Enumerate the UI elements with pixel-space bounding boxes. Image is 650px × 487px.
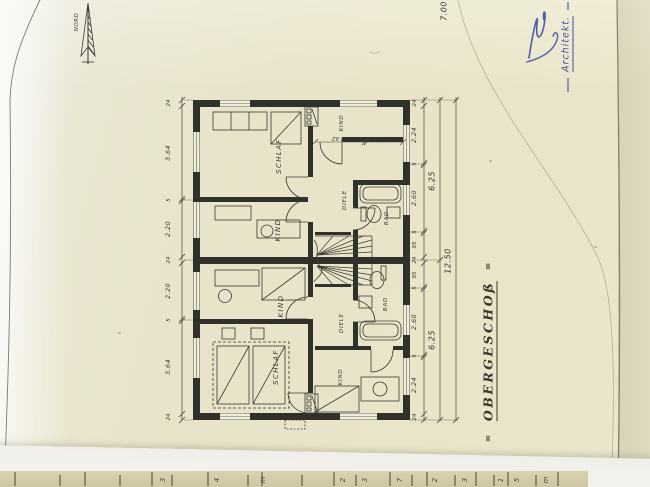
- dim-left-5: 24: [166, 257, 172, 264]
- dim-left-4: 2.20: [164, 221, 172, 237]
- dim-left-8: 3.64: [164, 359, 172, 375]
- ruler-digit: m: [259, 477, 267, 484]
- dim-left-9: 24: [166, 414, 172, 421]
- dim-right-7: 24: [412, 257, 418, 264]
- ruler-sheet-corner: [588, 468, 650, 487]
- dim-right-12: 2.24: [410, 377, 418, 393]
- dim-right-13: 24: [412, 414, 418, 421]
- dimension-chains: [0, 0, 650, 487]
- dim-right-9: 5: [412, 286, 418, 290]
- dim-left-6: 2.20: [164, 283, 172, 299]
- dim-right-1: 24: [412, 100, 418, 107]
- dim-right-5: 5: [412, 230, 418, 234]
- dim-right-3: 5: [412, 162, 418, 166]
- dim-left-3: 5: [166, 198, 172, 202]
- ruler-digit: 2: [339, 478, 347, 482]
- ruler-digit: 3: [159, 478, 167, 482]
- ruler-digit: 7: [396, 478, 404, 482]
- drawing-title: OBERGESCHOß: [481, 281, 498, 421]
- dim-overall-length: 12.50: [444, 248, 453, 273]
- dim-left-1: 24: [166, 100, 172, 107]
- dim-right-4: 2.60: [410, 190, 418, 206]
- dim-right-10: 2.60: [410, 314, 418, 330]
- dim-total-lower: 6.25: [428, 330, 437, 350]
- ruler-digit: 3: [461, 478, 469, 482]
- dim-left-2: 3.64: [164, 145, 172, 161]
- dim-left-7: 5: [166, 318, 172, 322]
- ruler-digit: 1: [497, 478, 505, 482]
- title-flank-right: =: [484, 262, 494, 271]
- ruler-digit: 3: [361, 478, 369, 482]
- dim-right-11: 5: [412, 354, 418, 358]
- ruler-digit: 2: [431, 478, 439, 482]
- dim-right-6: 95: [412, 242, 418, 249]
- title-flank-left: =: [484, 434, 494, 443]
- ruler-digit: 4: [213, 478, 221, 482]
- ruler-digit: 5: [513, 478, 521, 482]
- dim-right-8: 95: [412, 272, 418, 279]
- ruler-digit: m: [542, 477, 550, 484]
- photographed-floorplan: NORD Architekt. 7.00: [0, 0, 650, 487]
- dim-total-upper: 6.25: [428, 171, 437, 191]
- dim-right-2: 2.24: [410, 127, 418, 143]
